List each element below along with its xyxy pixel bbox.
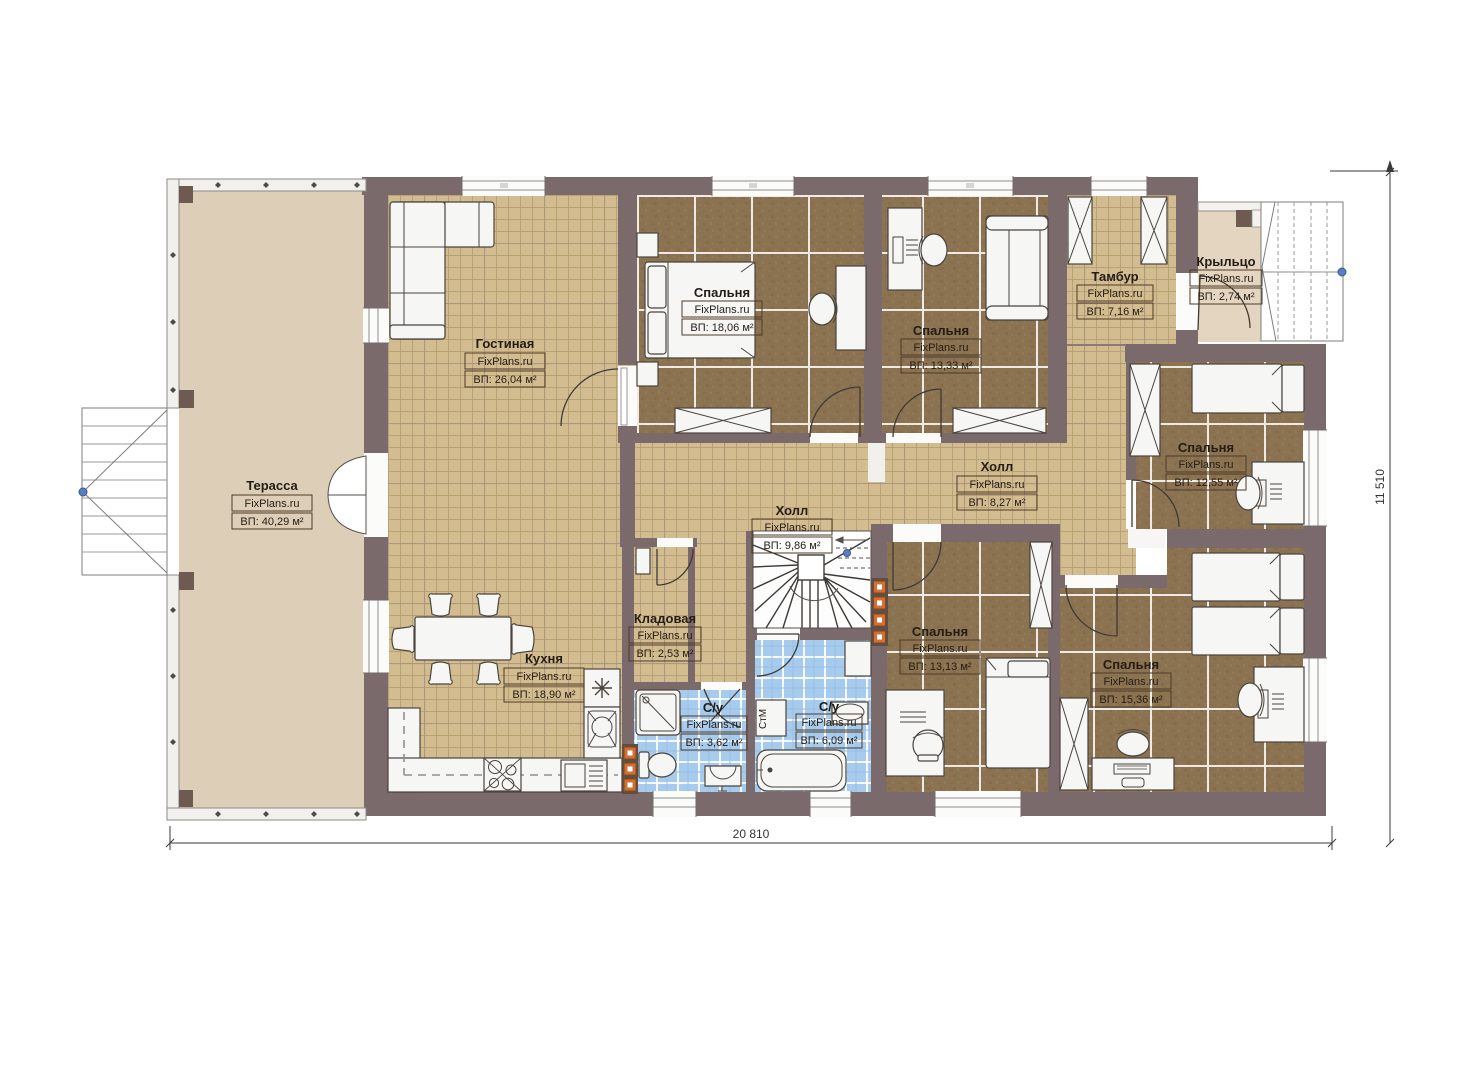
svg-text:FixPlans.ru: FixPlans.ru	[516, 671, 571, 683]
svg-text:С/у: С/у	[819, 699, 840, 714]
svg-text:ВП: 12,55 м²: ВП: 12,55 м²	[1174, 477, 1238, 489]
svg-text:Спальня: Спальня	[694, 285, 750, 300]
svg-text:Кладовая: Кладовая	[634, 611, 696, 626]
svg-text:ВП: 13,33 м²: ВП: 13,33 м²	[909, 360, 973, 372]
svg-text:FixPlans.ru: FixPlans.ru	[477, 356, 532, 368]
svg-text:ВП: 18,06 м²: ВП: 18,06 м²	[690, 322, 754, 334]
svg-text:ВП: 26,04 м²: ВП: 26,04 м²	[473, 374, 537, 386]
svg-text:Терасса: Терасса	[246, 478, 298, 493]
svg-text:Спальня: Спальня	[912, 624, 968, 639]
svg-text:ВП: 2,74 м²: ВП: 2,74 м²	[1197, 291, 1254, 303]
svg-text:ВП: 13,13 м²: ВП: 13,13 м²	[908, 661, 972, 673]
svg-text:ВП: 8,27 м²: ВП: 8,27 м²	[968, 497, 1025, 509]
svg-text:Крыльцо: Крыльцо	[1196, 254, 1255, 269]
svg-text:ВП: 6,09 м²: ВП: 6,09 м²	[800, 735, 857, 747]
svg-text:FixPlans.ru: FixPlans.ru	[764, 522, 819, 534]
svg-text:20 810: 20 810	[733, 827, 770, 841]
svg-text:11 510: 11 510	[1373, 469, 1387, 505]
svg-text:FixPlans.ru: FixPlans.ru	[1198, 273, 1253, 285]
svg-text:FixPlans.ru: FixPlans.ru	[913, 342, 968, 354]
svg-text:ВП: 3,62 м²: ВП: 3,62 м²	[685, 737, 742, 749]
svg-text:СтМ: СтМ	[758, 709, 769, 729]
svg-text:Холл: Холл	[776, 503, 809, 518]
svg-text:FixPlans.ru: FixPlans.ru	[686, 719, 741, 731]
svg-text:FixPlans.ru: FixPlans.ru	[1178, 459, 1233, 471]
svg-text:Спальня: Спальня	[1103, 657, 1159, 672]
svg-text:ВП: 40,29 м²: ВП: 40,29 м²	[240, 516, 304, 528]
svg-text:Спальня: Спальня	[913, 323, 969, 338]
svg-text:FixPlans.ru: FixPlans.ru	[801, 717, 856, 729]
svg-text:FixPlans.ru: FixPlans.ru	[1103, 676, 1158, 688]
svg-text:ВП: 18,90 м²: ВП: 18,90 м²	[512, 689, 576, 701]
svg-text:FixPlans.ru: FixPlans.ru	[694, 304, 749, 316]
svg-text:Гостиная: Гостиная	[476, 336, 535, 351]
svg-text:ВП: 2,53 м²: ВП: 2,53 м²	[636, 648, 693, 660]
svg-text:Тамбур: Тамбур	[1091, 269, 1138, 284]
svg-text:ВП: 9,86 м²: ВП: 9,86 м²	[763, 540, 820, 552]
svg-text:FixPlans.ru: FixPlans.ru	[912, 643, 967, 655]
svg-text:ВП: 15,36 м²: ВП: 15,36 м²	[1099, 694, 1163, 706]
svg-text:Кухня: Кухня	[525, 651, 563, 666]
svg-text:FixPlans.ru: FixPlans.ru	[1087, 288, 1142, 300]
svg-text:С/у: С/у	[703, 700, 724, 715]
svg-text:FixPlans.ru: FixPlans.ru	[244, 498, 299, 510]
svg-text:FixPlans.ru: FixPlans.ru	[969, 479, 1024, 491]
svg-text:Спальня: Спальня	[1178, 440, 1234, 455]
svg-text:Холл: Холл	[981, 459, 1014, 474]
svg-text:ВП: 7,16 м²: ВП: 7,16 м²	[1086, 306, 1143, 318]
svg-text:FixPlans.ru: FixPlans.ru	[637, 630, 692, 642]
